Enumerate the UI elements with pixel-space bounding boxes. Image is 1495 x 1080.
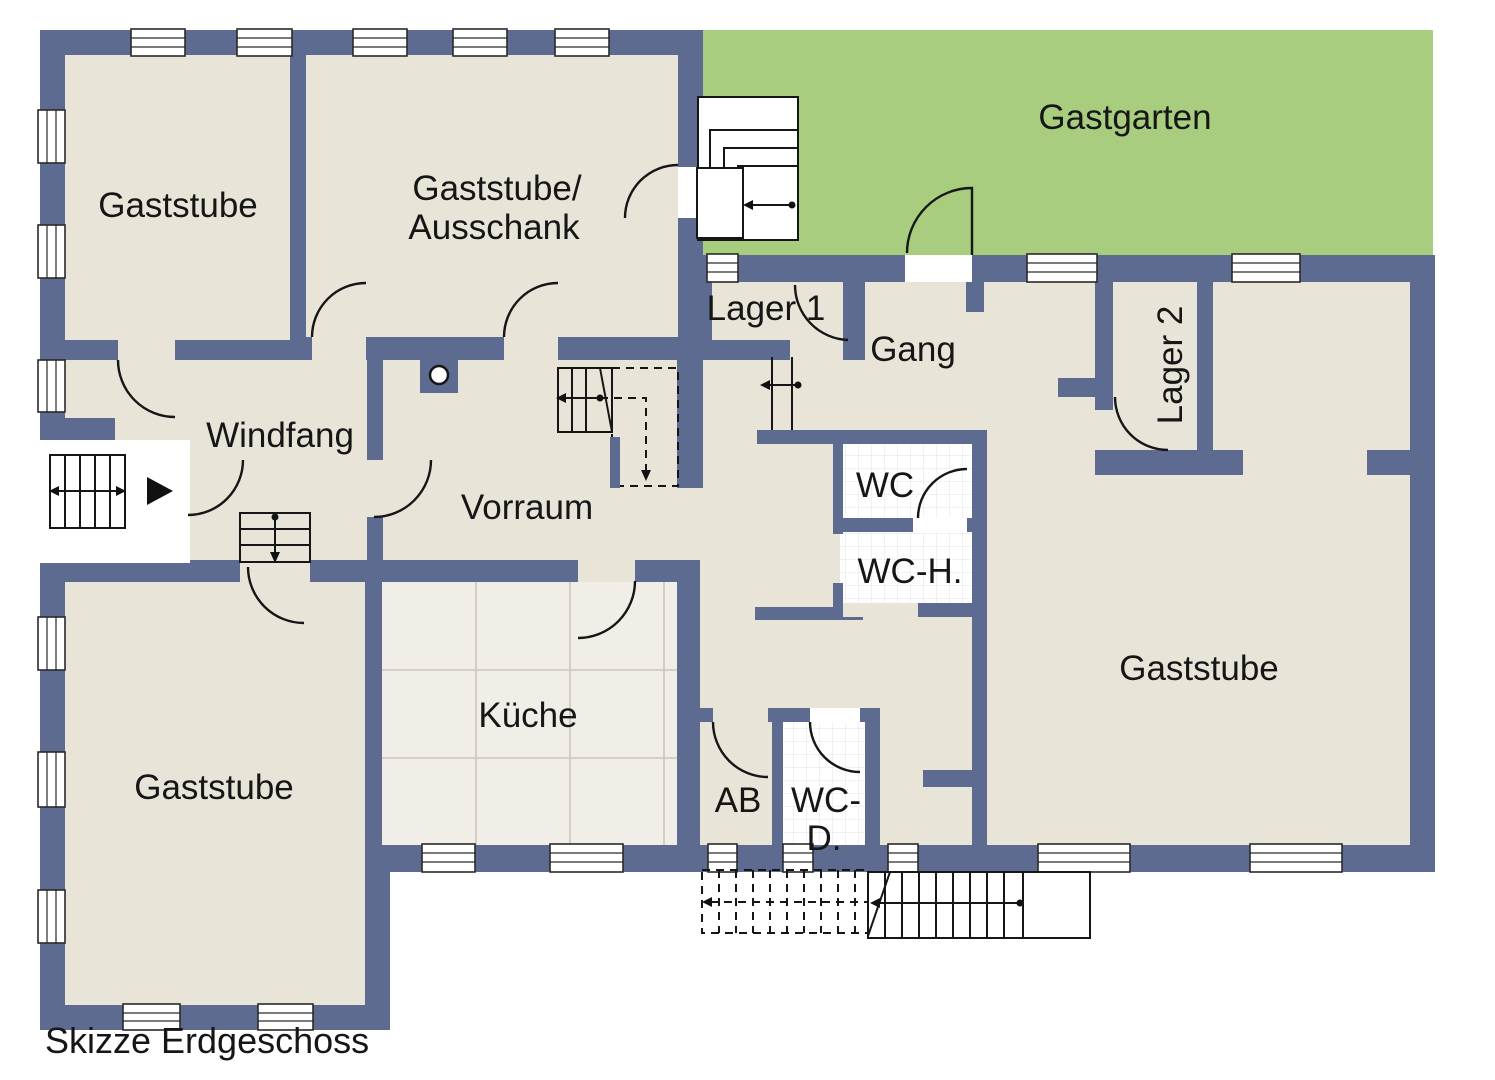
room-label-windfang: Windfang	[206, 416, 354, 455]
room-label-wc: WC	[856, 466, 914, 505]
room-label-gaststube-top-left: Gaststube	[98, 186, 258, 225]
room-label-gang: Gang	[870, 330, 956, 369]
room-label-gaststube-right: Gaststube	[1119, 649, 1279, 688]
room-label-gaststube-ausschank-line1: Gaststube/	[412, 169, 582, 208]
room-label-lager2: Lager 2	[1151, 306, 1190, 425]
room-label-gaststube-bottom-left: Gaststube	[134, 768, 294, 807]
room-label-gastgarten: Gastgarten	[1038, 98, 1211, 137]
main-entry-stairs	[40, 440, 190, 563]
room-label-lager1: Lager 1	[707, 289, 826, 328]
floor-plan-drawing: Gaststube Gaststube/ Ausschank Gastgarte…	[0, 0, 1495, 1080]
room-label-wc-d-line2: D.	[807, 819, 842, 858]
room-label-kueche: Küche	[478, 696, 577, 735]
room-label-ab: AB	[715, 781, 762, 820]
room-label-wc-d-line1: WC-	[791, 781, 861, 820]
chimney-icon	[430, 366, 448, 384]
entrance-landing	[697, 168, 743, 238]
room-label-vorraum: Vorraum	[461, 488, 593, 527]
room-label-gaststube-ausschank-line2: Ausschank	[408, 208, 580, 247]
floor-plan-page: Gaststube Gaststube/ Ausschank Gastgarte…	[0, 0, 1495, 1080]
room-label-wc-h: WC-H.	[858, 552, 963, 591]
plan-caption: Skizze Erdgeschoss	[45, 1020, 369, 1061]
garden-area	[700, 30, 1433, 255]
